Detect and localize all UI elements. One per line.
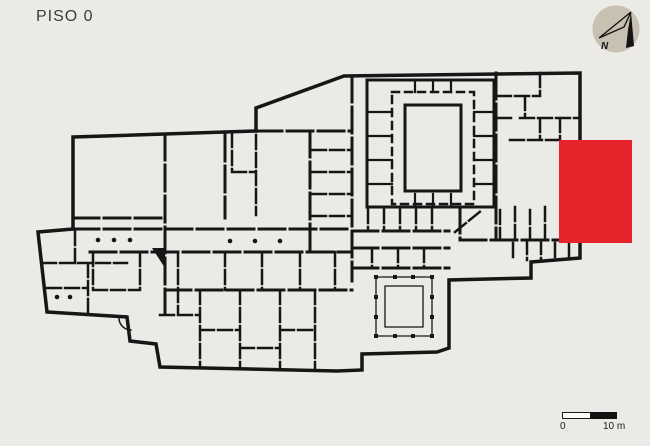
- compass-n-label: N: [601, 41, 609, 52]
- scale-start-label: 0: [560, 421, 566, 432]
- scale-bar: 0 10 m: [560, 410, 650, 440]
- scale-end-label: 10 m: [603, 421, 625, 432]
- north-arrow-icon: N: [588, 2, 648, 60]
- floor-plan-drawing: [0, 0, 650, 446]
- lower-courtyard: [376, 277, 432, 336]
- room-walls: [42, 73, 580, 370]
- highlighted-area[interactable]: [559, 140, 632, 243]
- scale-bar-white-segment: [562, 412, 591, 419]
- floor-plan-page: PISO 0: [0, 0, 669, 446]
- scale-bar-black-segment: [591, 412, 617, 419]
- page-right-margin: [650, 0, 669, 446]
- scale-bar-graphic: [562, 412, 617, 419]
- plan-canvas: PISO 0: [0, 0, 650, 446]
